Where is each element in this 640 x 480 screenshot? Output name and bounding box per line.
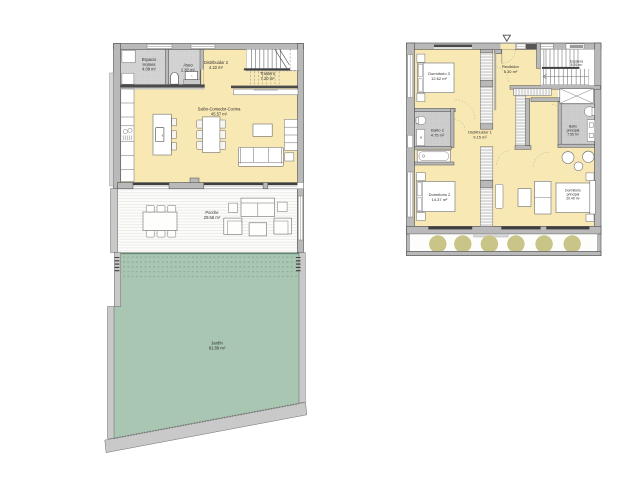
- svg-text:6.91 m²: 6.91 m²: [571, 63, 583, 67]
- svg-text:12.62 m²: 12.62 m²: [431, 76, 447, 81]
- svg-text:4.08 m²: 4.08 m²: [142, 67, 157, 72]
- svg-text:45.57 m²: 45.57 m²: [211, 111, 228, 116]
- svg-text:14.37 m²: 14.37 m²: [432, 197, 448, 202]
- svg-text:7.20 m²: 7.20 m²: [261, 76, 276, 81]
- svg-text:7.55 m²: 7.55 m²: [567, 132, 579, 136]
- svg-text:4.22 m²: 4.22 m²: [209, 65, 224, 70]
- svg-text:5.30 m²: 5.30 m²: [504, 69, 518, 74]
- svg-text:4.75 m²: 4.75 m²: [431, 132, 445, 137]
- svg-text:9.15 m²: 9.15 m²: [473, 134, 487, 139]
- svg-text:20.49 m²: 20.49 m²: [566, 196, 580, 200]
- svg-text:29.56 m²: 29.56 m²: [204, 215, 221, 220]
- svg-text:81.89 m²: 81.89 m²: [209, 345, 226, 350]
- svg-text:2.82 m²: 2.82 m²: [181, 67, 196, 72]
